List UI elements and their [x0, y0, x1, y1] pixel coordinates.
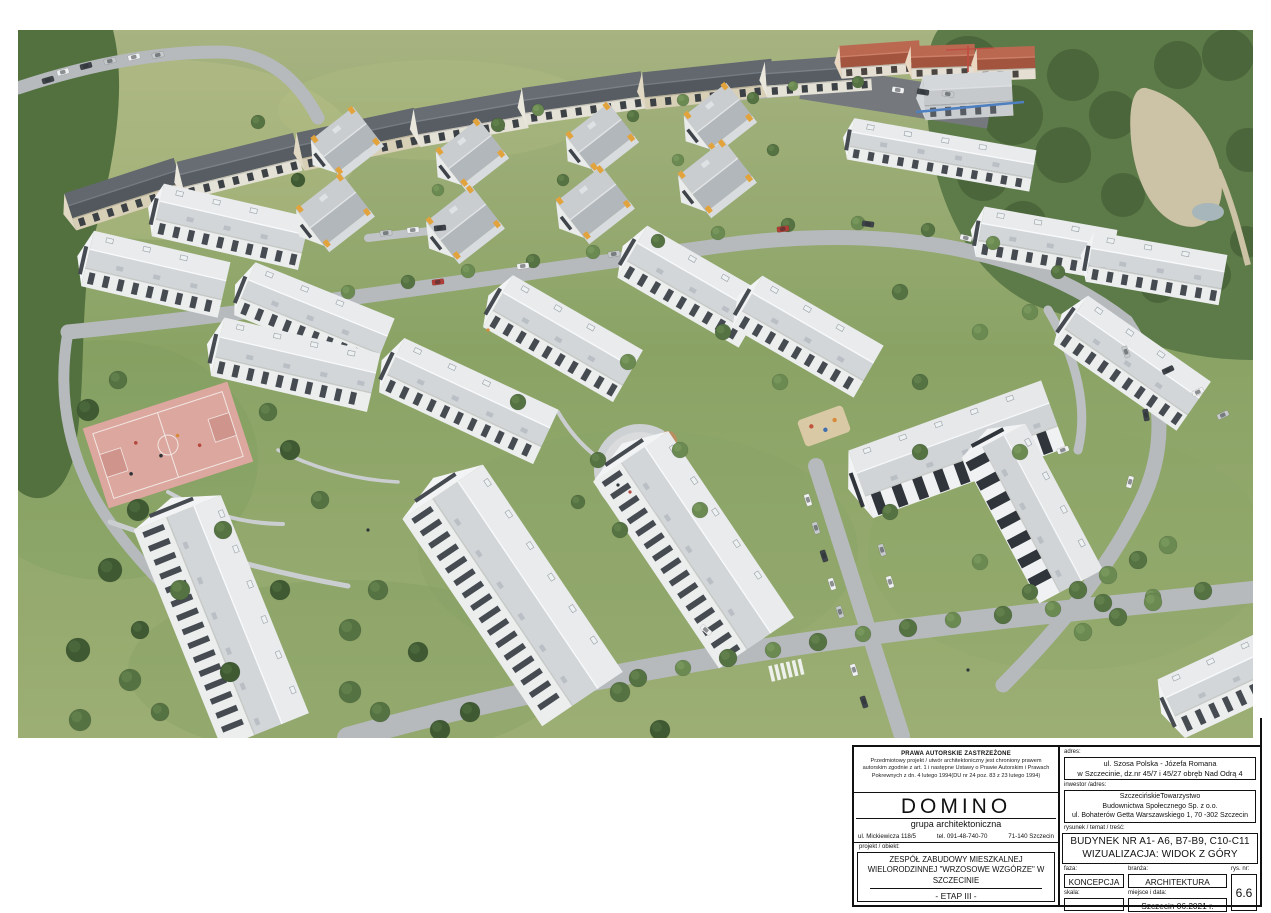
studio-address-row: ul. Mickiewicza 118/5 tel. 091-48-740-70…: [858, 833, 1054, 840]
branch-date-column: branża: ARCHITEKTURA miejsce i data: Szc…: [1126, 865, 1229, 913]
studio-name: DOMINO: [854, 796, 1058, 818]
investor-box: SzczecińskieTowarzystwo Budownictwa Społ…: [1064, 790, 1256, 822]
pond: [1192, 203, 1224, 221]
address-line1: ul. Szosa Polska - Józefa Romana: [1067, 759, 1253, 769]
branch-value: ARCHITEKTURA: [1128, 874, 1227, 888]
phase-scale-column: faza: KONCEPCJA skala:: [1062, 865, 1126, 913]
studio-phone: tel. 091-48-740-70: [937, 833, 988, 840]
investor-line3: ul. Bohaterów Getta Warszawskiego 1, 70 …: [1067, 811, 1253, 820]
drawing-label: rysunek / temat / treść:: [1064, 825, 1258, 832]
investor-line1: SzczecińskieTowarzystwo: [1067, 792, 1253, 801]
drawing-number-column: rys. nr: 6.6: [1229, 865, 1258, 913]
drawing-line2: WIZUALIZACJA: WIDOK Z GÓRY: [1065, 848, 1255, 862]
sheet-border-tick: [1260, 718, 1262, 746]
address-label: adres:: [1064, 749, 1258, 756]
aerial-visualization-canvas: [18, 30, 1253, 738]
project-name: ZESPÓŁ ZABUDOWY MIESZKALNEJ WIELORODZINN…: [862, 855, 1050, 886]
title-block-left-column: PRAWA AUTORSKIE ZASTRZEŻONE Przedmiotowy…: [854, 747, 1060, 905]
aerial-visualization: [18, 30, 1253, 738]
studio-street: ul. Mickiewicza 118/5: [858, 833, 916, 840]
car: [407, 227, 420, 234]
project-label: projekt / obiekt:: [859, 844, 1055, 851]
drawing-no-label: rys. nr:: [1231, 866, 1258, 873]
phase-value: KONCEPCJA: [1064, 874, 1124, 888]
copyright-note: PRAWA AUTORSKIE ZASTRZEŻONE Przedmiotowy…: [854, 747, 1058, 793]
copyright-body: Przedmiotowy projekt / utwór architekton…: [860, 758, 1052, 780]
car: [434, 225, 447, 232]
title-block-grid: faza: KONCEPCJA skala: branża: ARCHITEKT…: [1062, 865, 1258, 913]
investor-line2: Budownictwa Społecznego Sp. z o.o.: [1067, 802, 1253, 811]
project-box: ZESPÓŁ ZABUDOWY MIESZKALNEJ WIELORODZINN…: [857, 852, 1055, 902]
address-line2: w Szczecinie, dz.nr 45/7 i 45/27 obręb N…: [1067, 769, 1253, 779]
branch-label: branża:: [1128, 866, 1229, 873]
scale-label: skala:: [1064, 890, 1126, 897]
studio-city: 71-140 Szczecin: [1008, 833, 1054, 840]
drawing-no-value: 6.6: [1231, 874, 1257, 911]
project-stage: - ETAP III -: [862, 891, 1050, 901]
car: [380, 230, 393, 237]
copyright-title: PRAWA AUTORSKIE ZASTRZEŻONE: [860, 751, 1052, 757]
building-under-construction: [915, 71, 1014, 121]
title-block-right-column: adres: ul. Szosa Polska - Józefa Romana …: [1060, 747, 1260, 905]
place-date-value: Szczecin 06.2021 r.: [1128, 898, 1227, 912]
project-rule: [870, 888, 1042, 889]
address-box: ul. Szosa Polska - Józefa Romana w Szcze…: [1064, 757, 1256, 780]
title-block: PRAWA AUTORSKIE ZASTRZEŻONE Przedmiotowy…: [852, 745, 1262, 907]
place-date-label: miejsce i data:: [1128, 890, 1229, 897]
drawing-line1: BUDYNEK NR A1- A6, B7-B9, C10-C11: [1065, 835, 1255, 849]
studio-subtitle: grupa architektoniczna: [854, 819, 1058, 829]
phase-label: faza:: [1064, 866, 1126, 873]
project-block: projekt / obiekt: ZESPÓŁ ZABUDOWY MIESZK…: [854, 843, 1058, 905]
studio-block: DOMINO grupa architektoniczna ul. Mickie…: [854, 793, 1058, 843]
drawing-title-box: BUDYNEK NR A1- A6, B7-B9, C10-C11 WIZUAL…: [1062, 833, 1258, 865]
investor-label: inwestor /adres:: [1064, 782, 1258, 789]
